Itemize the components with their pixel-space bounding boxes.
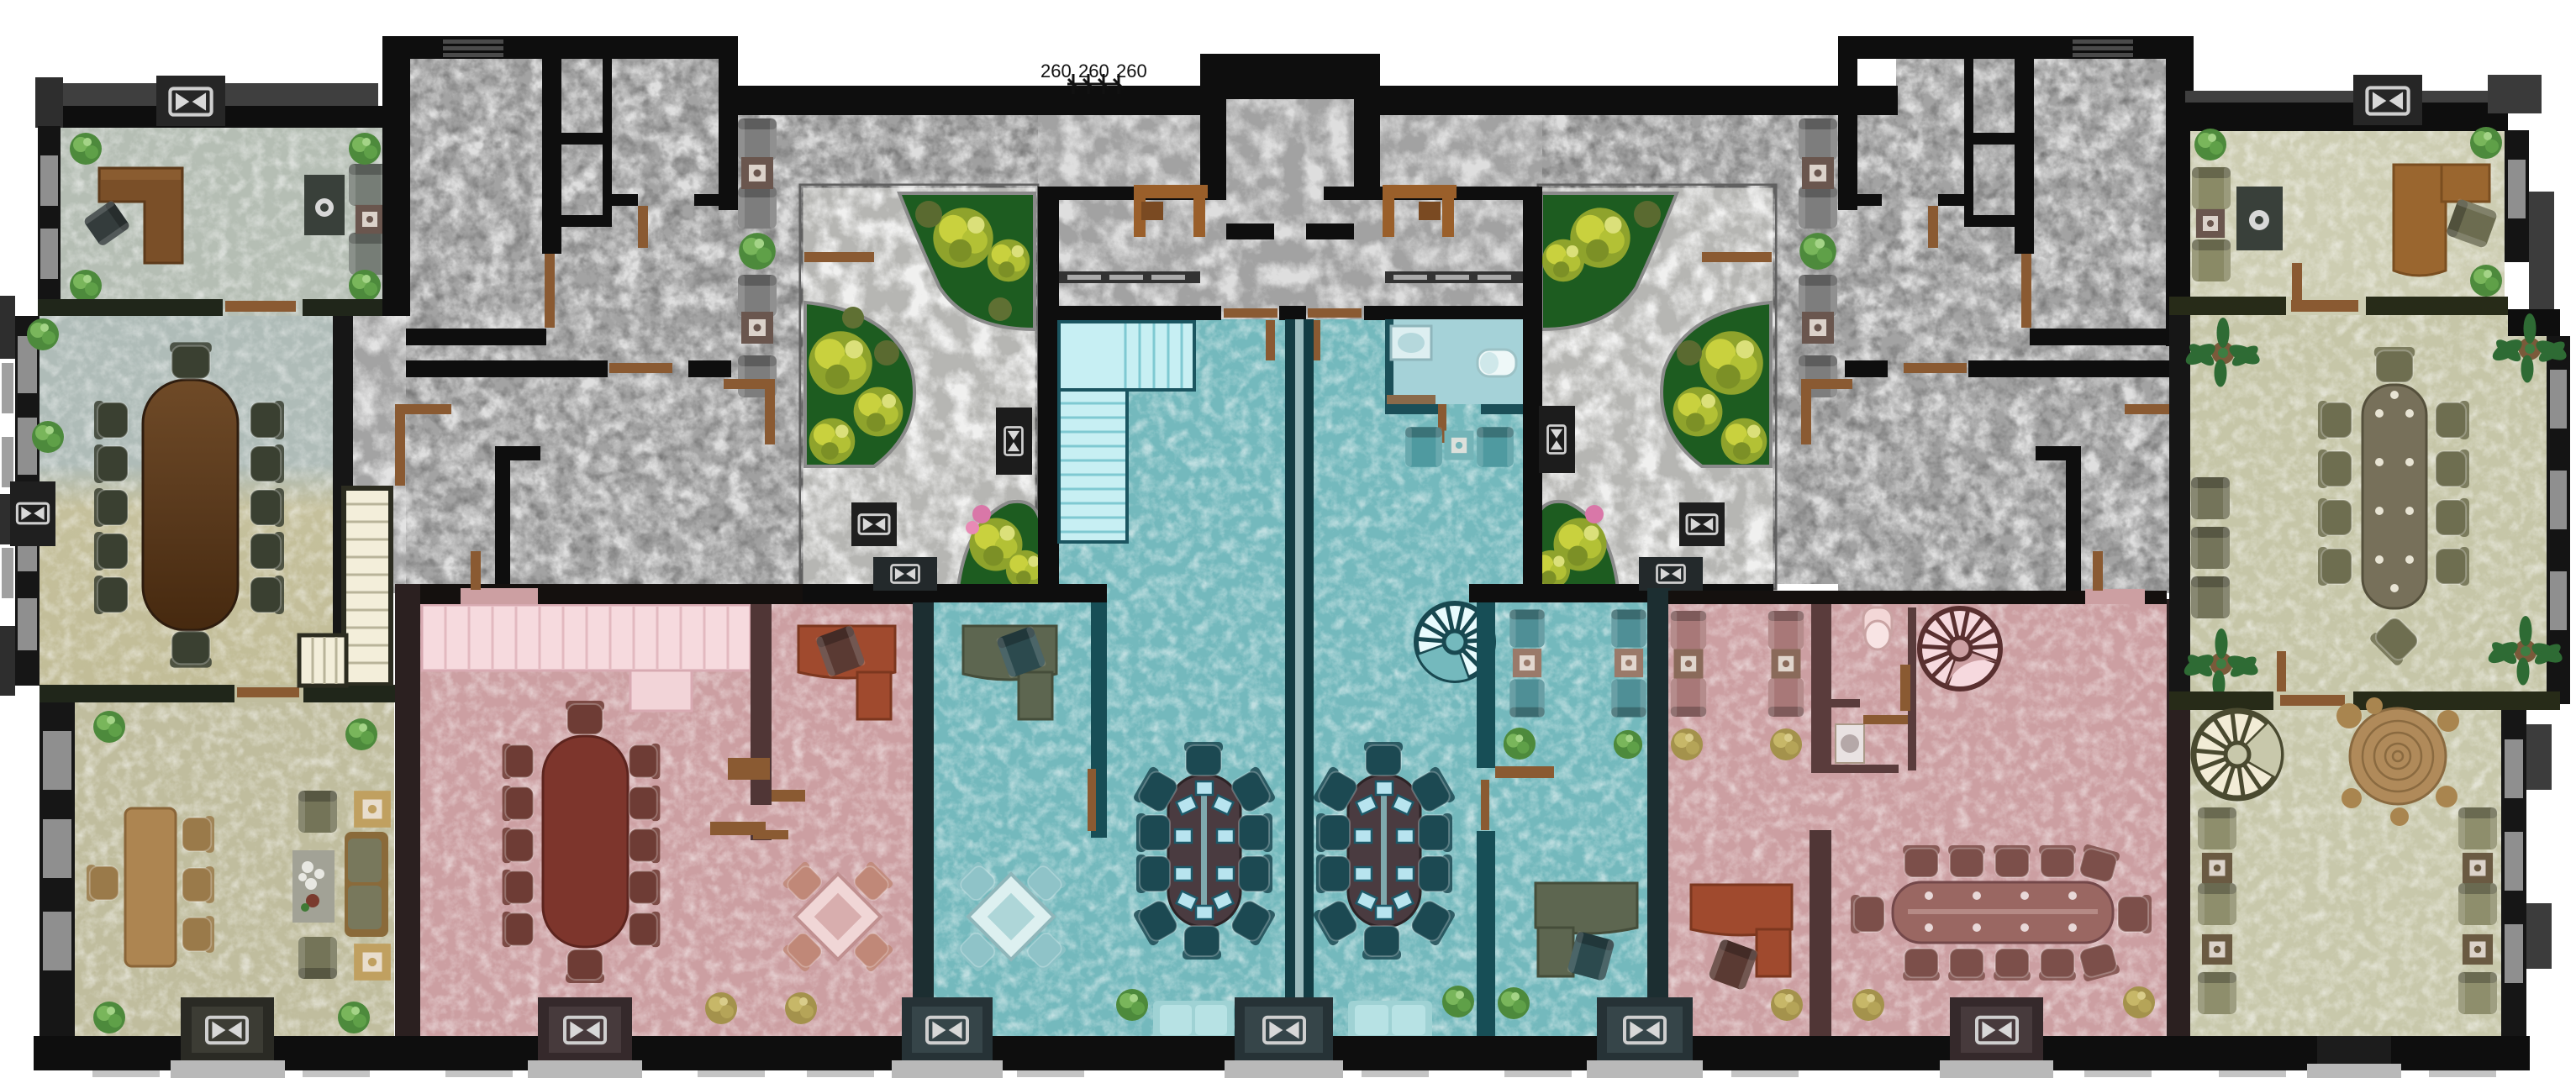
svg-text:260: 260 xyxy=(1116,60,1147,82)
svg-text:260: 260 xyxy=(1040,60,1072,82)
